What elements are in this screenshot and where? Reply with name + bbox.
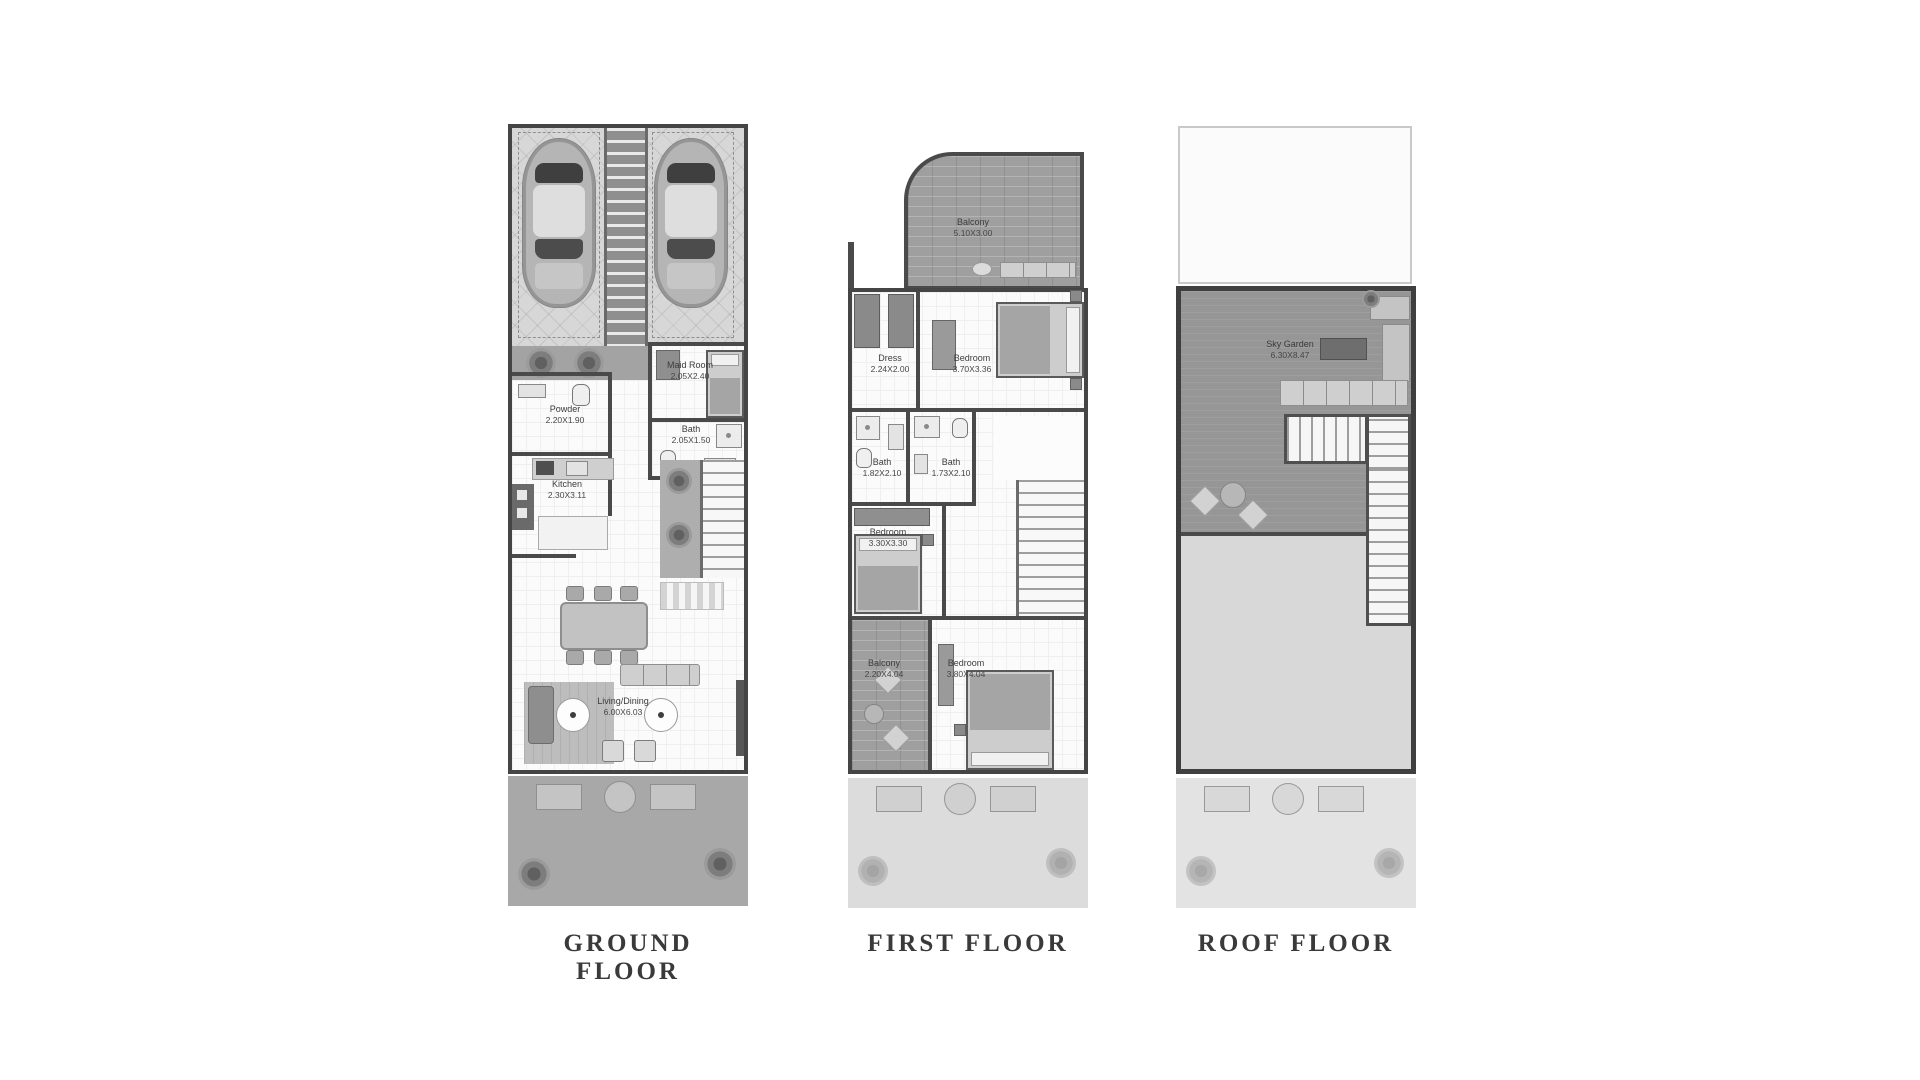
room-name: Bedroom xyxy=(870,527,907,537)
room-dims: 1.82X2.10 xyxy=(863,468,902,479)
room-dims: 2.20X4.04 xyxy=(865,669,904,680)
shower-icon xyxy=(716,424,742,448)
room-label-sky-garden: Sky Garden 6.30X8.47 xyxy=(1266,339,1314,361)
nightstand xyxy=(954,724,966,736)
room-dims: 5.10X3.00 xyxy=(954,228,993,239)
plant-icon xyxy=(1046,848,1076,878)
sink-icon xyxy=(518,384,546,398)
garden-bench xyxy=(536,784,582,810)
dining-chair xyxy=(620,650,638,665)
room-label-bedroom-3: Bedroom 3.80X4.04 xyxy=(947,658,986,680)
room-label-balcony-2: Balcony 2.20X4.04 xyxy=(865,658,904,680)
room-dims: 2.05X1.50 xyxy=(672,435,711,446)
car-right xyxy=(654,138,728,308)
dining-chair xyxy=(620,586,638,601)
car-trunk xyxy=(667,263,715,289)
wall xyxy=(652,418,744,422)
toilet-icon xyxy=(952,418,968,438)
wall xyxy=(972,412,976,502)
balcony-bottom xyxy=(852,620,928,770)
bed-pillow xyxy=(1066,307,1080,373)
armchair xyxy=(528,686,554,744)
nightstand xyxy=(1070,378,1082,390)
plant-icon xyxy=(1362,290,1380,308)
stair-landing-mat xyxy=(660,582,724,610)
room-label-bath: Bath 2.05X1.50 xyxy=(672,424,711,446)
floor-plans-canvas: Maid Room 2.05X2.40 Powder 2.20X1.90 Bat… xyxy=(0,0,1920,1080)
staircase xyxy=(1016,480,1084,616)
room-name: Bath xyxy=(682,424,701,434)
plant-icon xyxy=(858,856,888,886)
room-dims: 2.30X3.11 xyxy=(548,490,586,501)
stair-lower-run xyxy=(1366,414,1411,626)
wardrobe xyxy=(854,508,930,526)
wall xyxy=(906,412,910,502)
room-name: Kitchen xyxy=(552,479,582,489)
wall xyxy=(512,452,612,456)
roof-open-area xyxy=(1178,126,1412,284)
room-label-bedroom-1: Bedroom 3.70X3.36 xyxy=(953,353,992,375)
car-roof xyxy=(665,185,717,237)
garage-staircase xyxy=(604,128,648,346)
plant-icon xyxy=(704,848,736,880)
car-rear-window xyxy=(535,239,583,259)
title-first-floor: FIRST FLOOR xyxy=(848,930,1088,964)
bed-blanket xyxy=(858,566,918,610)
floor-plan-first: Balcony 5.10X3.00 Dress 2.24X2.00 Bedroo… xyxy=(848,124,1088,906)
wall xyxy=(512,554,576,558)
sofa xyxy=(620,664,700,686)
dining-chair xyxy=(566,650,584,665)
room-label-dress: Dress 2.24X2.00 xyxy=(871,353,910,375)
garden-bench xyxy=(650,784,696,810)
garden-bench xyxy=(990,786,1036,812)
dining-chair xyxy=(594,650,612,665)
title-roof-floor: ROOF FLOOR xyxy=(1176,930,1416,964)
room-name: Balcony xyxy=(868,658,900,668)
room-label-bath-1: Bath 1.82X2.10 xyxy=(863,457,902,479)
room-label-balcony: Balcony 5.10X3.00 xyxy=(954,217,993,239)
garden-strip-roof xyxy=(1176,778,1416,908)
room-name: Sky Garden xyxy=(1266,339,1314,349)
car-left xyxy=(522,138,596,308)
room-name: Balcony xyxy=(957,217,989,227)
balcony-top xyxy=(904,152,1084,290)
room-dims: 3.80X4.04 xyxy=(947,669,986,680)
sink-icon xyxy=(914,454,928,474)
floor-plan-roof: Sky Garden 6.30X8.47 xyxy=(1176,124,1416,906)
balcony-bench xyxy=(1000,262,1076,278)
garden-table xyxy=(604,781,636,813)
garden-table xyxy=(1272,783,1304,815)
outdoor-sofa xyxy=(1280,380,1408,406)
toilet-icon xyxy=(572,384,590,406)
balcony-stool xyxy=(972,262,992,276)
stove-icon xyxy=(536,461,554,475)
dining-chair xyxy=(594,586,612,601)
room-name: Living/Dining xyxy=(597,696,649,706)
garden-bench xyxy=(1318,786,1364,812)
garden-strip-ground xyxy=(508,776,748,906)
car-windshield xyxy=(535,163,583,183)
garden-table xyxy=(944,783,976,815)
room-label-maid-room: Maid Room 2.05X2.40 xyxy=(667,360,713,382)
nightstand xyxy=(922,534,934,546)
room-dims: 2.20X1.90 xyxy=(546,415,585,426)
plant-icon xyxy=(1186,856,1216,886)
kitchen-island xyxy=(538,516,608,550)
wall xyxy=(916,292,920,408)
bedroom-bed xyxy=(996,302,1084,378)
room-name: Dress xyxy=(878,353,902,363)
room-dims: 2.05X2.40 xyxy=(667,371,713,382)
side-chair xyxy=(602,740,624,762)
wall xyxy=(942,506,946,616)
bed-blanket xyxy=(710,378,740,414)
wall xyxy=(928,620,932,770)
room-name: Bedroom xyxy=(948,658,985,668)
planter-box xyxy=(1320,338,1367,360)
room-label-kitchen: Kitchen 2.30X3.11 xyxy=(548,479,586,501)
lounge-set xyxy=(1382,324,1410,382)
shower-icon xyxy=(914,416,940,438)
wall xyxy=(852,502,976,506)
room-dims: 6.00X6.03 xyxy=(597,707,649,718)
room-name: Bath xyxy=(942,457,961,467)
garden-bench xyxy=(876,786,922,812)
car-rear-window xyxy=(667,239,715,259)
room-dims: 3.30X3.30 xyxy=(869,538,908,549)
nightstand xyxy=(1070,290,1082,302)
wardrobe xyxy=(888,294,914,348)
room-label-bath-2: Bath 1.73X2.10 xyxy=(932,457,971,479)
appliance-icon xyxy=(517,508,527,518)
plant-icon xyxy=(666,468,692,494)
room-dims: 3.70X3.36 xyxy=(953,364,992,375)
wall xyxy=(852,408,1084,412)
balcony-table xyxy=(864,704,884,724)
side-chair xyxy=(634,740,656,762)
room-name: Bath xyxy=(873,457,892,467)
plant-icon xyxy=(666,522,692,548)
lounge-chair xyxy=(556,698,590,732)
bedroom-bed xyxy=(966,670,1054,770)
stair-upper-run xyxy=(1284,414,1368,464)
garden-strip-first xyxy=(848,778,1088,908)
wardrobe xyxy=(854,294,880,348)
room-name: Bedroom xyxy=(954,353,991,363)
room-dims: 1.73X2.10 xyxy=(932,468,971,479)
tv-console xyxy=(736,680,744,756)
room-name: Maid Room xyxy=(667,360,713,370)
stair-landing xyxy=(994,416,1084,480)
sink-icon xyxy=(566,461,588,476)
appliance-icon xyxy=(517,490,527,500)
wall xyxy=(648,342,744,346)
car-windshield xyxy=(667,163,715,183)
main-staircase xyxy=(700,460,744,578)
wall xyxy=(512,372,612,376)
room-label-bedroom-2: Bedroom 3.30X3.30 xyxy=(869,527,908,549)
room-label-living-dining: Living/Dining 6.00X6.03 xyxy=(597,696,649,718)
floor-plan-ground: Maid Room 2.05X2.40 Powder 2.20X1.90 Bat… xyxy=(508,124,748,906)
dining-table xyxy=(560,602,648,650)
car-trunk xyxy=(535,263,583,289)
wall xyxy=(608,372,612,456)
bed-pillow xyxy=(711,354,739,366)
bed-blanket xyxy=(970,674,1050,730)
wall xyxy=(848,242,854,290)
room-name: Powder xyxy=(550,404,581,414)
plant-icon xyxy=(518,858,550,890)
deck-table xyxy=(1220,482,1246,508)
room-label-powder: Powder 2.20X1.90 xyxy=(546,404,585,426)
dining-chair xyxy=(566,586,584,601)
plant-icon xyxy=(1374,848,1404,878)
shower-icon xyxy=(856,416,880,440)
garden-bench xyxy=(1204,786,1250,812)
title-ground-floor: GROUND FLOOR xyxy=(508,930,748,964)
room-dims: 6.30X8.47 xyxy=(1266,350,1314,361)
bed-blanket xyxy=(1000,306,1050,374)
car-roof xyxy=(533,185,585,237)
wall xyxy=(648,346,652,480)
room-dims: 2.24X2.00 xyxy=(871,364,910,375)
lounge-chair xyxy=(644,698,678,732)
sink-icon xyxy=(888,424,904,450)
bed-pillow xyxy=(971,752,1049,766)
